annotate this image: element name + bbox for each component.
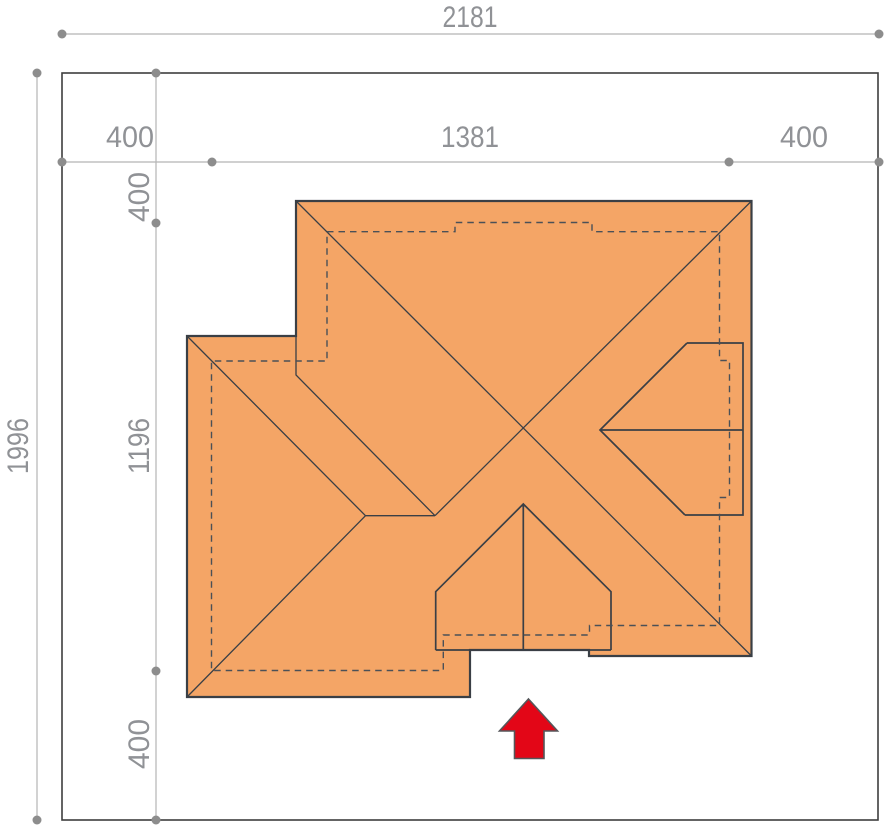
dimension-label-top-setback: 400 — [123, 172, 156, 222]
dimension-total-width: 2181 — [58, 1, 884, 39]
dimension-dot — [152, 69, 161, 78]
dimension-dot — [152, 667, 161, 676]
dimension-label-bottom-setback: 400 — [123, 719, 156, 769]
dimension-label-right-setback: 400 — [780, 121, 828, 154]
dimension-label-building-depth: 1196 — [123, 418, 156, 474]
site-plan-drawing: 2181 400 1381 400 1996 400 — [0, 0, 885, 827]
dimension-dot — [33, 69, 42, 78]
dimension-dot — [725, 158, 734, 167]
dimension-dot — [58, 158, 67, 167]
dimension-dot — [33, 816, 42, 825]
dimension-label-total-width: 2181 — [443, 1, 498, 34]
dimension-label-total-height: 1996 — [2, 418, 35, 474]
dimension-dot — [208, 158, 217, 167]
dimension-dot — [875, 158, 884, 167]
dimension-total-height: 1996 — [2, 69, 42, 825]
dimension-dot — [152, 816, 161, 825]
dimension-label-left-setback: 400 — [106, 121, 154, 154]
dimension-dot — [58, 30, 67, 39]
dimension-dot — [875, 30, 884, 39]
site-plan-page: 2181 400 1381 400 1996 400 — [0, 0, 885, 827]
dimension-label-building-width: 1381 — [441, 121, 499, 154]
